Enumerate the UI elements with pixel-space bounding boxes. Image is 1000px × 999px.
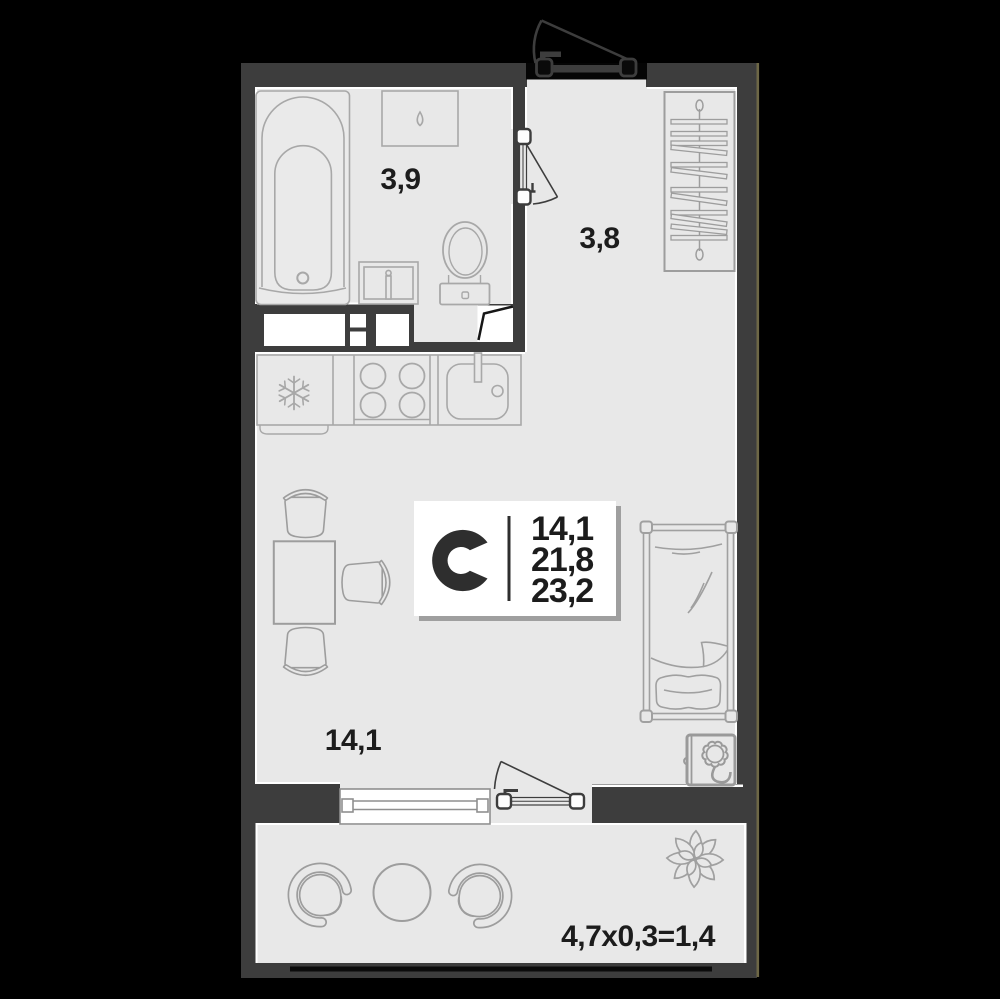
svg-text:3,8: 3,8	[579, 222, 619, 255]
svg-text:4,7x0,3=1,4: 4,7x0,3=1,4	[561, 920, 716, 953]
svg-text:3,9: 3,9	[380, 163, 420, 196]
svg-text:23,2: 23,2	[531, 572, 593, 610]
svg-text:14,1: 14,1	[325, 724, 381, 757]
